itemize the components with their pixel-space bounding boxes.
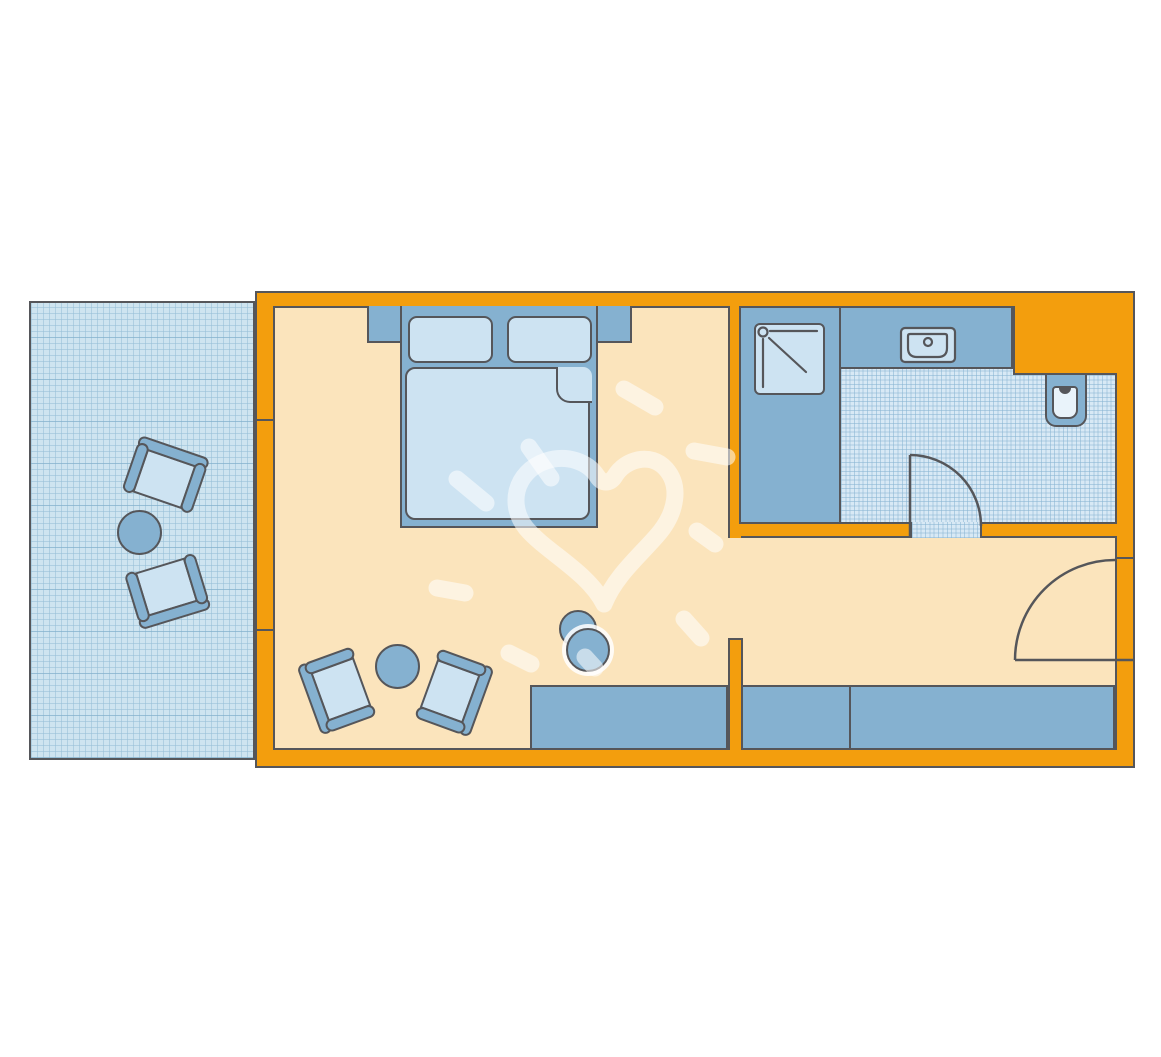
floor-plan xyxy=(0,0,1161,1057)
vanity-counter xyxy=(841,306,1013,369)
bathroom-wall-bottom-right xyxy=(980,522,1117,538)
floor-lamp-shade xyxy=(566,628,610,672)
bathroom-wall-nook xyxy=(1013,306,1117,375)
bathroom-wall-bottom-left xyxy=(741,522,912,538)
wardrobe-right xyxy=(741,685,1115,748)
wardrobe-left xyxy=(530,685,728,748)
round-table-terrace xyxy=(117,510,162,555)
wardrobe-divider xyxy=(849,685,851,748)
bathroom-door-opening xyxy=(912,522,980,538)
duvet-fold-corner xyxy=(556,367,592,403)
nightstand-right xyxy=(596,306,632,343)
entrance-jamb-top xyxy=(1115,557,1135,559)
round-table-room xyxy=(375,644,420,689)
terrace-opening-jamb-bottom xyxy=(255,629,275,631)
pillow-right xyxy=(507,316,592,363)
pillow-left xyxy=(408,316,493,363)
terrace-opening-jamb-top xyxy=(255,419,275,421)
shower-tray xyxy=(754,323,825,395)
nightstand-left xyxy=(367,306,402,343)
